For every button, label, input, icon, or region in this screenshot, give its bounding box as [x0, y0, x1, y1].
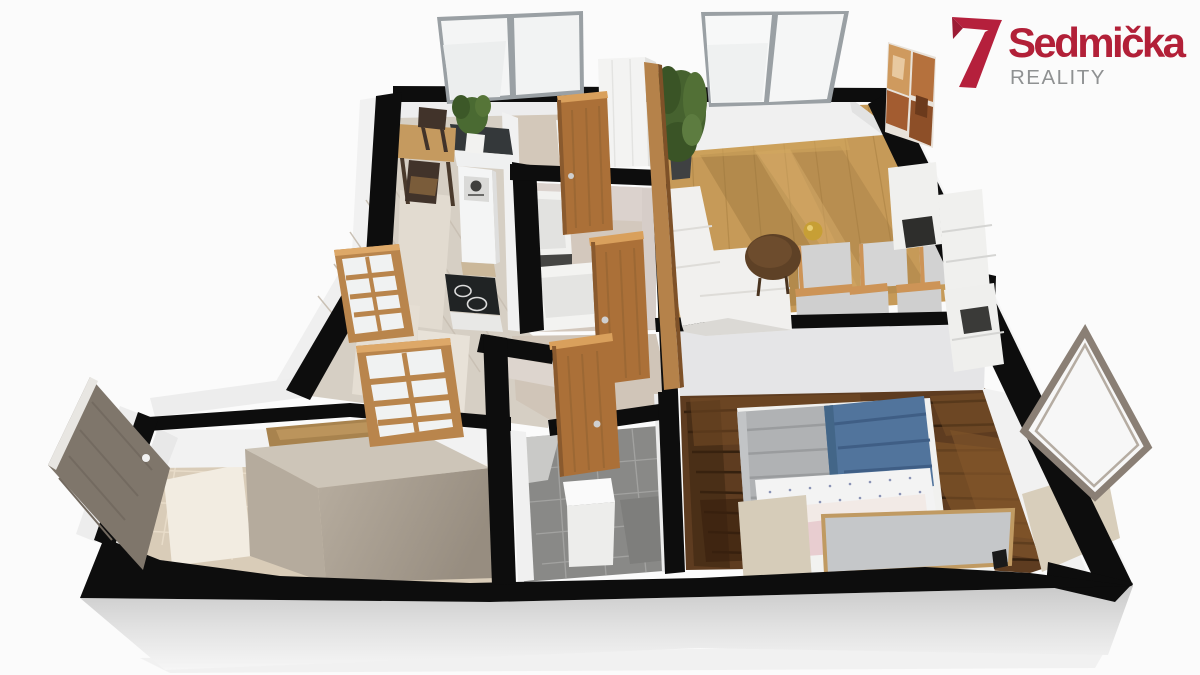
svg-text:Sedmička: Sedmička [1008, 19, 1187, 66]
svg-text:REALITY: REALITY [1010, 66, 1106, 89]
